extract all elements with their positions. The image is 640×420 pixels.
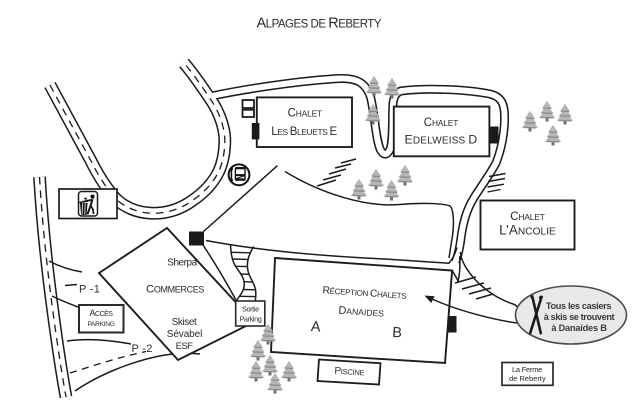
svg-text:ALPAGES DE REBERTY: ALPAGES DE REBERTY — [257, 15, 382, 31]
svg-text:PARKING: PARKING — [87, 321, 114, 328]
svg-text:PISCINE: PISCINE — [334, 366, 365, 379]
svg-text:Skiset: Skiset — [172, 317, 197, 328]
svg-text:A: A — [310, 319, 321, 336]
svg-text:Tous les casiers: Tous les casiers — [546, 301, 611, 311]
svg-text:Parking: Parking — [239, 314, 261, 323]
svg-text:à skis se trouvent: à skis se trouvent — [544, 312, 615, 322]
svg-text:Sherpa: Sherpa — [167, 258, 197, 269]
svg-text:B: B — [392, 325, 403, 342]
svg-text:COMMERCES: COMMERCES — [146, 283, 204, 295]
svg-text:à Danaides B: à Danaides B — [551, 323, 607, 333]
svg-text:CHALET: CHALET — [510, 211, 544, 223]
svg-text:CHALET: CHALET — [288, 108, 322, 120]
svg-text:ESF: ESF — [176, 341, 193, 352]
svg-text:CHALET: CHALET — [424, 117, 458, 129]
svg-text:P -2: P -2 — [132, 343, 153, 355]
svg-text:P -1: P -1 — [79, 283, 100, 295]
svg-text:de Reberty: de Reberty — [509, 374, 546, 383]
svg-text:La Ferme: La Ferme — [512, 365, 542, 374]
svg-text:Sévabel: Sévabel — [167, 329, 202, 340]
svg-text:LES BLEUETS E: LES BLEUETS E — [271, 126, 337, 138]
svg-text:Sortie: Sortie — [242, 305, 259, 314]
svg-text:EDELWEISS D: EDELWEISS D — [405, 133, 478, 147]
